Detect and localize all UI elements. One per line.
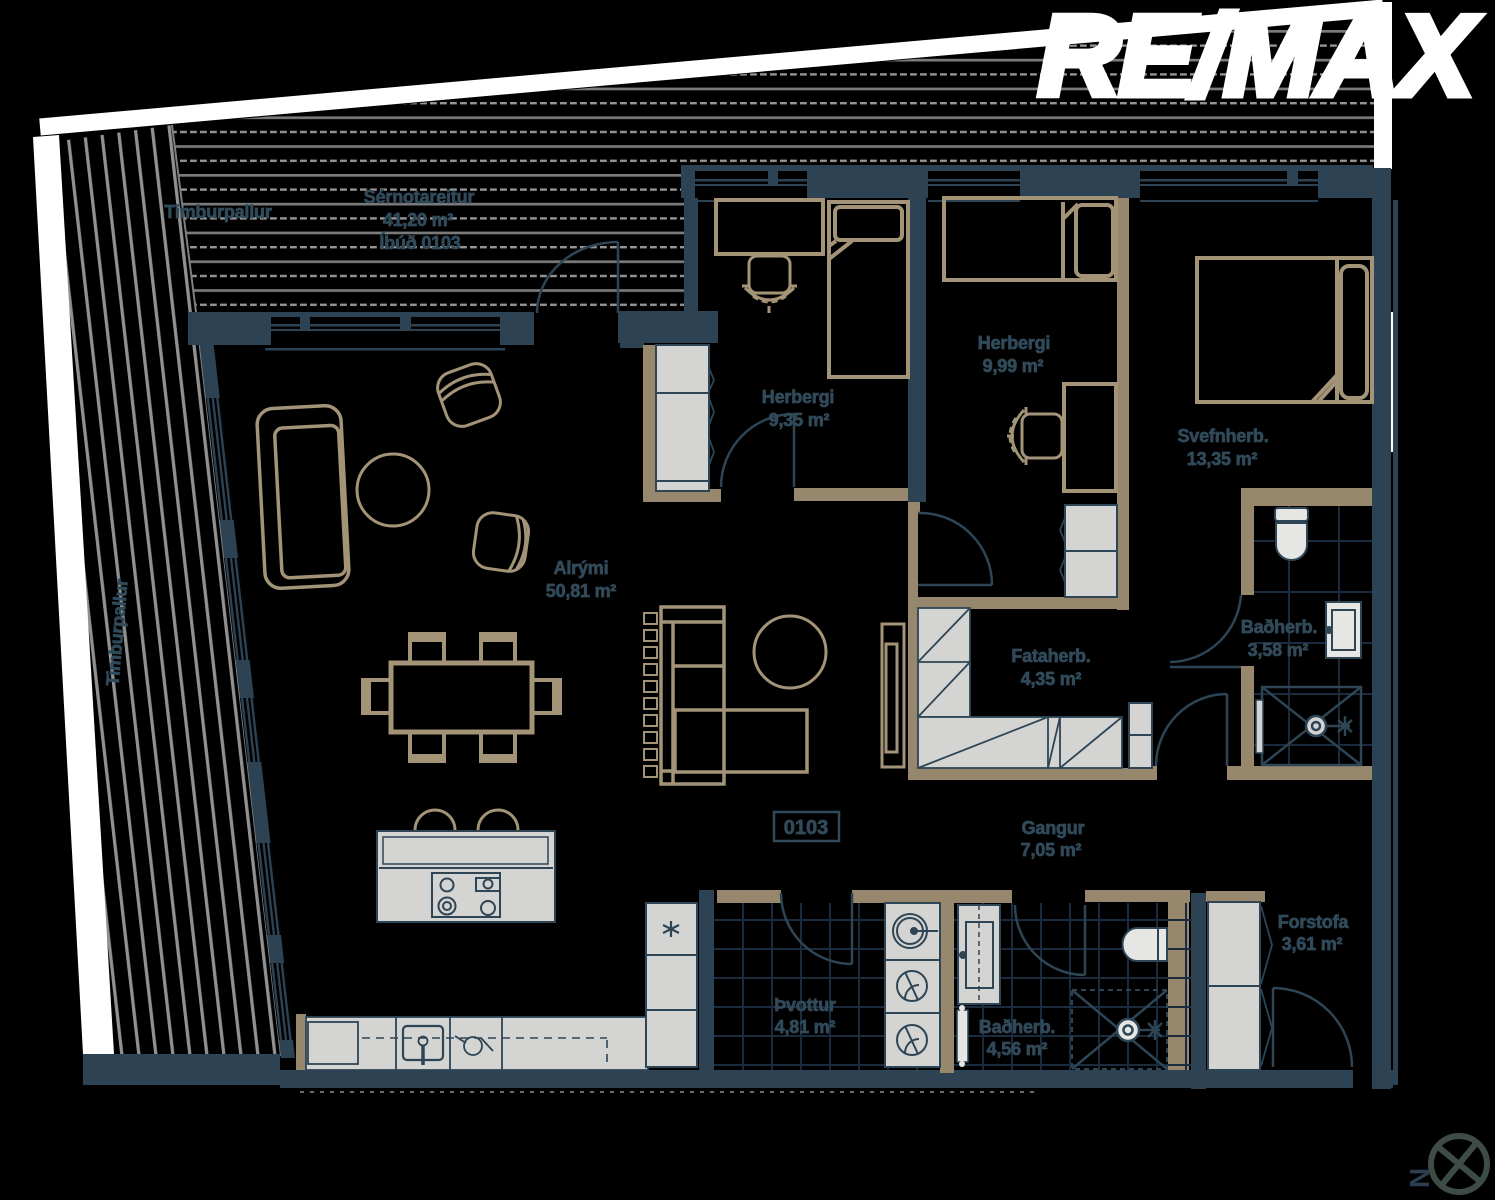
svg-text:Þvottur: Þvottur (774, 995, 836, 1015)
svg-text:Timburpallur: Timburpallur (164, 202, 271, 222)
svg-text:Herbergi: Herbergi (978, 333, 1050, 353)
svg-text:Forstofa: Forstofa (1278, 912, 1350, 932)
svg-text:RE/MAX: RE/MAX (1038, 0, 1480, 120)
svg-text:50,81 m²: 50,81 m² (546, 581, 617, 601)
svg-text:41,20 m²: 41,20 m² (383, 210, 454, 230)
svg-text:N: N (1404, 1168, 1435, 1188)
svg-text:Gangur: Gangur (1022, 818, 1085, 838)
svg-text:Baðherb.: Baðherb. (979, 1017, 1055, 1037)
svg-text:3,61 m²: 3,61 m² (1282, 934, 1343, 954)
svg-text:7,05 m²: 7,05 m² (1021, 840, 1082, 860)
svg-text:Svefnherb.: Svefnherb. (1177, 426, 1268, 446)
svg-text:9,35 m²: 9,35 m² (769, 410, 830, 430)
svg-text:13,35 m²: 13,35 m² (1187, 449, 1258, 469)
svg-text:4,56 m²: 4,56 m² (987, 1039, 1048, 1059)
svg-text:Íbúð 0103: Íbúð 0103 (379, 232, 460, 253)
svg-text:Baðherb.: Baðherb. (1241, 617, 1317, 637)
svg-text:0103: 0103 (784, 817, 829, 839)
svg-text:Sérnotareitur: Sérnotareitur (364, 187, 475, 207)
svg-text:4,35 m²: 4,35 m² (1021, 669, 1082, 689)
svg-text:4,81 m²: 4,81 m² (775, 1017, 836, 1037)
svg-text:Fataherb.: Fataherb. (1011, 646, 1090, 666)
svg-text:9,99 m²: 9,99 m² (983, 356, 1044, 376)
svg-text:Alrými: Alrými (554, 558, 609, 578)
svg-text:3,58 m²: 3,58 m² (1248, 640, 1309, 660)
svg-text:Herbergi: Herbergi (762, 387, 834, 407)
